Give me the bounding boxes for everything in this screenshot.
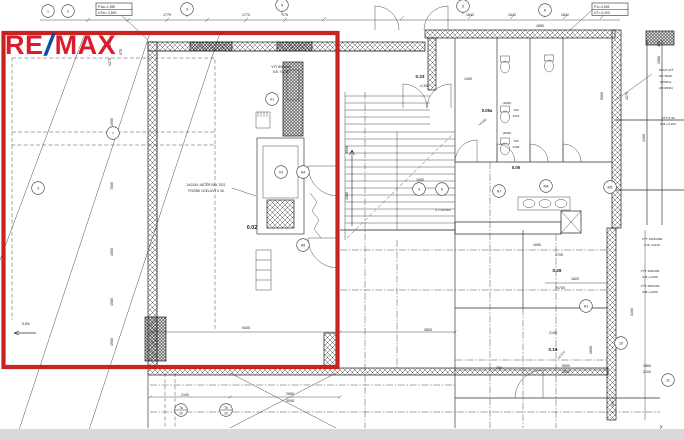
marker-bubble: H5 — [297, 239, 310, 252]
marker-bubble: 10 — [615, 337, 628, 350]
dim-label: (POZINK) — [659, 86, 673, 90]
marker-bubble: 4 — [276, 0, 289, 11]
dim-label: 0.23 — [416, 74, 425, 79]
dim-label: 450 — [611, 401, 615, 407]
dim-label: 1642 — [466, 13, 474, 17]
dim-label: 2150 — [549, 331, 557, 335]
svg-text:V3: V3 — [279, 170, 283, 174]
svg-text:7a: 7a — [179, 406, 183, 410]
svg-text:7b: 7b — [224, 406, 228, 410]
dim-label: 1860 — [643, 364, 651, 368]
fireplace — [257, 62, 304, 234]
dim-label: 5900 — [562, 364, 570, 368]
dim-label: 450 — [657, 41, 661, 47]
grid-markers: 12345637H4H57a207b2045N7M4M510H111V3V1 — [32, 0, 675, 416]
dim-label: 1460 — [642, 134, 646, 142]
dim-label: 0.05a — [482, 108, 493, 113]
dim-label: 1400 — [464, 77, 472, 81]
dim-label: 1650 — [533, 243, 541, 247]
logo-slash: / — [44, 27, 55, 62]
dim-label: 1080 — [345, 192, 349, 200]
dim-label: VÝT 250x200 — [641, 284, 660, 288]
walls-layer — [145, 30, 674, 420]
dim-label: S.B.+3,100 — [660, 122, 676, 126]
marker-bubble: 6 — [539, 4, 552, 17]
dim-label: 1820 — [571, 277, 579, 281]
dim-label: +4,270 — [556, 350, 566, 360]
svg-text:2: 2 — [67, 9, 69, 13]
dim-label: 5000 — [600, 92, 604, 100]
marker-bubble: 7b20 — [220, 404, 233, 417]
dim-label: 1642 — [508, 13, 516, 17]
level-box: P1=-0,245UT=-0,400 — [592, 3, 628, 16]
svg-text:UTm=-1,500: UTm=-1,500 — [98, 11, 117, 15]
svg-text:10: 10 — [619, 341, 623, 345]
toilet — [545, 55, 554, 72]
dim-label: 3400 — [630, 308, 634, 316]
bottom-strip — [0, 429, 684, 440]
marker-bubble: H1 — [580, 300, 593, 313]
dim-label: VÝT 400x300 — [641, 269, 660, 273]
dim-label: VÝT 800x660 — [271, 65, 290, 69]
dim-label: 2100 — [181, 393, 189, 397]
svg-text:5: 5 — [441, 187, 443, 191]
dim-label: 2100 — [643, 370, 651, 374]
marker-bubble: M5 — [604, 181, 617, 194]
remax-logo: RE/MAX — [5, 28, 116, 59]
svg-text:11: 11 — [666, 378, 670, 382]
dim-label: S.B.+3,010 — [644, 243, 660, 247]
marker-bubble: N7 — [493, 185, 506, 198]
dim-label: 7800 — [110, 182, 114, 190]
dim-label: POZINK OCELOVÝ # 45 — [188, 189, 223, 193]
dim-label: 2850 — [286, 392, 294, 396]
radiator — [256, 112, 270, 128]
svg-text:N7: N7 — [497, 189, 502, 193]
marker-bubble: 5 — [457, 0, 470, 12]
dim-label: 0.06 — [512, 165, 521, 170]
dim-label: VÝT # 40 — [662, 116, 675, 120]
dim-label: -0,300 — [419, 84, 428, 88]
floor-plan-drawing: 12345637H4H57a207b2045N7M4M510H111V3V1 P… — [0, 0, 684, 440]
dim-label: (2000) — [503, 131, 512, 135]
dim-label: 0.02 — [247, 225, 258, 231]
dim-label: 1642 — [561, 13, 569, 17]
logo-re: RE — [5, 30, 44, 60]
dim-label: S.B. +2,700 — [273, 70, 290, 74]
marker-bubble: 11 — [662, 374, 675, 387]
dim-label: 175 — [282, 13, 288, 17]
svg-text:UT=-0,400: UT=-0,400 — [594, 11, 610, 15]
break-line — [310, 193, 321, 238]
marker-bubble: V3 — [275, 166, 288, 179]
toilet — [501, 56, 510, 73]
dim-label: 2x700 — [555, 286, 565, 290]
svg-text:6: 6 — [544, 8, 546, 12]
dim-label: 1850 — [536, 24, 544, 28]
dim-label: 0.19 — [549, 347, 558, 352]
dim-label: 1650 — [416, 178, 424, 182]
dim-label: 700 — [513, 108, 518, 112]
svg-text:4: 4 — [418, 187, 420, 191]
dim-label: 3006 — [286, 399, 294, 403]
marker-bubble: 3 — [32, 182, 45, 195]
dim-label: PROFIL — [660, 80, 671, 84]
logo-max: MAX — [55, 30, 117, 60]
cabinet-column — [256, 250, 271, 290]
dim-label: (2000) — [503, 101, 512, 105]
marker-bubble: H4 — [297, 166, 310, 179]
dim-label: 750 — [496, 366, 502, 370]
svg-text:1: 1 — [47, 9, 49, 13]
dim-label: 5,5% — [22, 322, 30, 326]
dim-label: 4270 — [625, 92, 629, 100]
dim-label: 2700 — [555, 253, 563, 257]
slope-arrow — [14, 331, 36, 335]
marker-bubble: M4 — [540, 180, 553, 193]
svg-text:H5: H5 — [301, 243, 306, 247]
marker-bubble: 1 — [42, 5, 55, 18]
toilet — [501, 106, 510, 123]
dim-label: 1770 — [242, 13, 250, 17]
dim-label: 1580 — [657, 56, 661, 64]
dim-label: 975 — [119, 49, 123, 55]
dim-label: NA TRAP. — [659, 74, 673, 78]
svg-text:H1: H1 — [584, 304, 589, 308]
marker-bubble: 4 — [413, 183, 426, 196]
dim-label: 2100 — [513, 145, 520, 149]
dim-label: S.B.+3,050 — [642, 275, 658, 279]
dim-label: 2936 — [345, 146, 349, 154]
dim-label: NOVÁ SÍŤ — [659, 67, 674, 72]
dim-label: +4,300 — [477, 117, 487, 126]
svg-text:H4: H4 — [301, 170, 306, 174]
dim-label: 2800 — [424, 328, 432, 332]
dim-label: 5400 — [242, 326, 250, 330]
toilet — [501, 138, 510, 155]
svg-text:3: 3 — [37, 186, 39, 190]
marker-bubble: V1 — [266, 93, 279, 106]
svg-text:P1a=-1,390: P1a=-1,390 — [98, 5, 115, 9]
svg-text:P1=-0,245: P1=-0,245 — [594, 5, 609, 9]
dim-label: S.B.+3,050 — [642, 290, 658, 294]
svg-text:V1: V1 — [270, 97, 274, 101]
marker-bubble: 3 — [181, 3, 194, 16]
sink-counter — [518, 197, 570, 210]
svg-text:M5: M5 — [608, 185, 613, 189]
centerlines — [149, 92, 661, 428]
svg-text:M4: M4 — [544, 184, 549, 188]
dim-label: 2 x 12x162 — [435, 208, 450, 212]
fixtures — [232, 55, 652, 290]
dim-label: 1950 — [110, 248, 114, 256]
dim-label: 1779 — [163, 13, 171, 17]
dim-label: 0.29 — [553, 268, 562, 273]
marker-bubble: 7 — [107, 127, 120, 140]
dim-label: 3600 — [562, 370, 570, 374]
dim-label: VÝT 1200x580 — [642, 237, 663, 241]
marker-bubble: 2 — [62, 5, 75, 18]
svg-text:20: 20 — [224, 411, 228, 415]
svg-text:3: 3 — [186, 7, 188, 11]
dim-label: 2690 — [589, 346, 593, 354]
screenshot-root: 12345637H4H57a207b2045N7M4M510H111V3V1 P… — [0, 0, 684, 440]
level-box: P1a=-1,390UTm=-1,500 — [96, 3, 132, 16]
svg-text:4: 4 — [281, 3, 283, 7]
dim-label: 1950 — [110, 338, 114, 346]
svg-text:20: 20 — [179, 411, 183, 415]
dim-label: 1950 — [110, 118, 114, 126]
dim-label: 1080 — [110, 298, 114, 306]
dim-label: 1970 — [513, 114, 520, 118]
marker-bubble: 5 — [436, 183, 449, 196]
marker-bubble: 7a20 — [175, 404, 188, 417]
dim-label: 2x2/140, NÁTĚR RAL 7021 — [187, 182, 226, 187]
svg-text:7: 7 — [112, 131, 114, 135]
svg-text:5: 5 — [462, 4, 464, 8]
dim-label: 700 — [513, 139, 518, 143]
